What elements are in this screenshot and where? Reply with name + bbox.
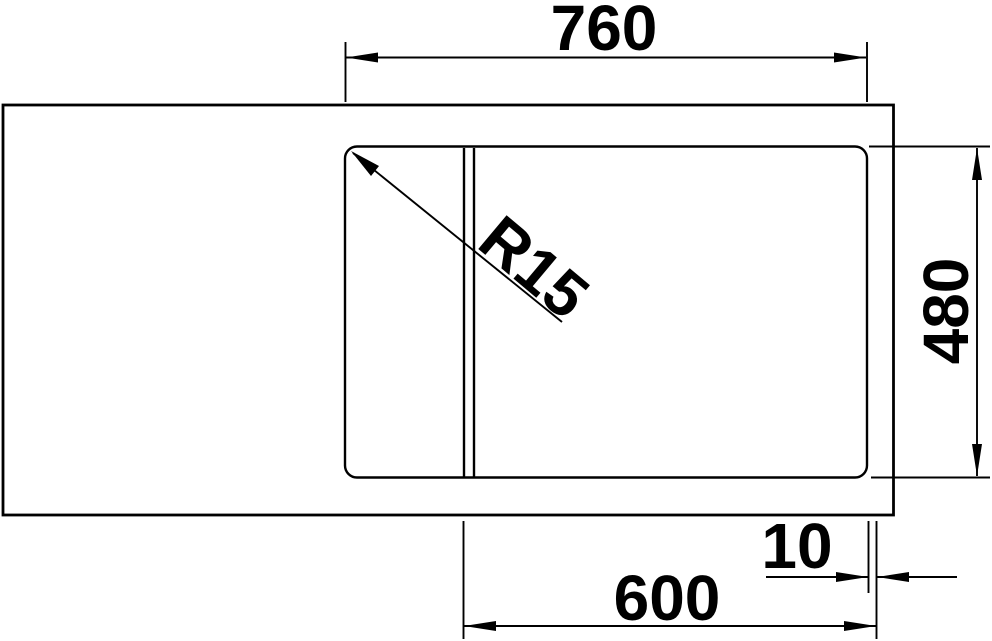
dimension-value-bottom-width: 600 — [614, 562, 721, 634]
dimension-value-bottom-offset: 10 — [761, 510, 832, 582]
dimension-top-width: 760 — [346, 0, 868, 102]
arrowhead-top — [972, 148, 982, 180]
arrowhead-left — [346, 53, 378, 63]
dimension-value-right-depth: 480 — [910, 258, 982, 365]
dimension-right-depth: 480 — [869, 147, 990, 478]
sink-technical-drawing: 760 480 10 600 — [0, 0, 992, 641]
arrowhead-pointing-left — [877, 572, 909, 582]
dimension-bottom-offset: 10 — [761, 510, 957, 593]
drawing-canvas: 760 480 10 600 — [0, 0, 992, 641]
radius-callout: R15 — [351, 151, 602, 332]
arrowhead-pointing-right — [836, 572, 868, 582]
arrowhead-corner — [351, 151, 379, 176]
dimension-value-top-width: 760 — [551, 0, 658, 64]
bowl-outline — [345, 147, 867, 478]
arrowhead-left — [464, 621, 496, 631]
radius-value: R15 — [466, 202, 602, 333]
arrowhead-right — [834, 53, 866, 63]
sink-body — [3, 105, 894, 515]
sink-outline — [3, 105, 894, 515]
arrowhead-bottom — [972, 444, 982, 476]
arrowhead-right — [844, 621, 876, 631]
